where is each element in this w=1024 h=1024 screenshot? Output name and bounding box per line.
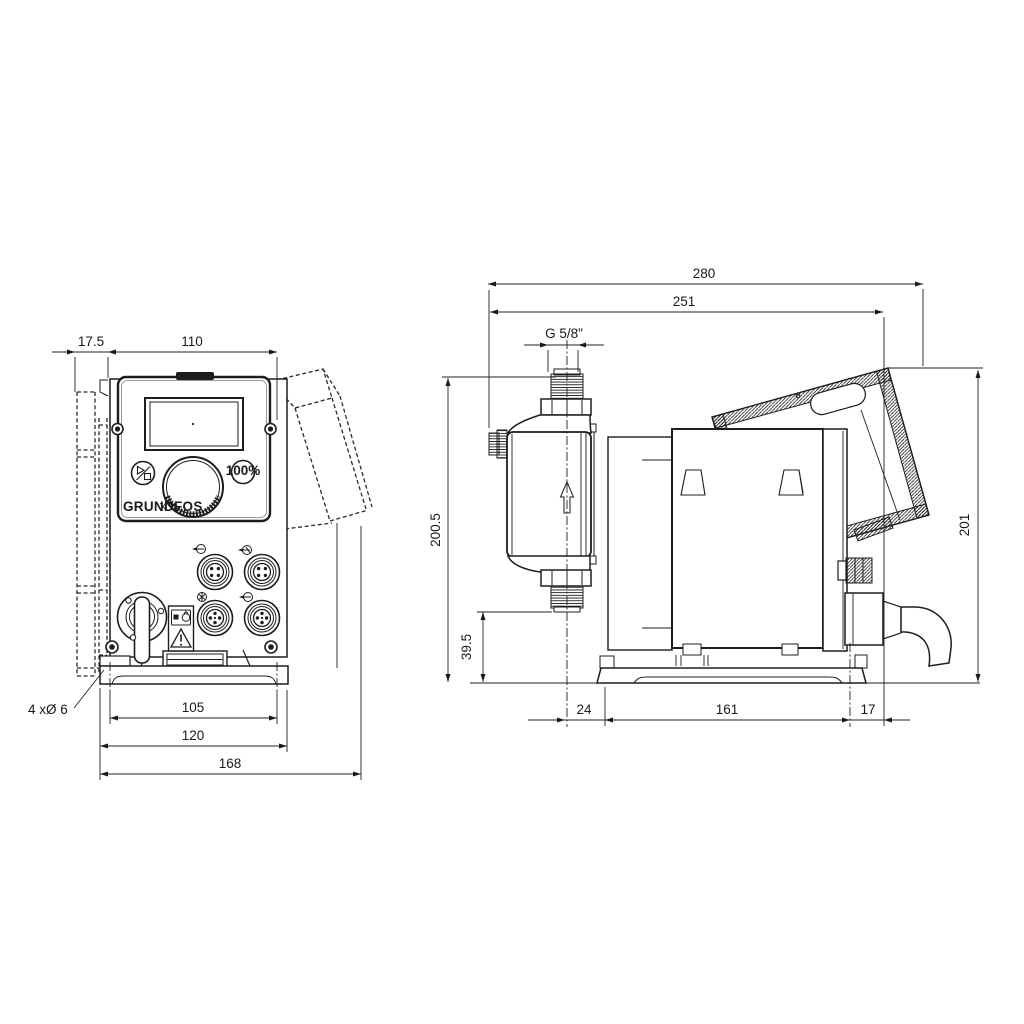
dim-base-length: 161 [716, 702, 739, 717]
panel-top-tab [176, 372, 214, 380]
vent-valve[interactable] [489, 430, 507, 458]
rear-connections [838, 558, 951, 666]
dim-thread: G 5/8" [545, 326, 583, 341]
percent-button-label: 100% [226, 463, 261, 478]
dosing-pump-dimensional-drawing: 100% GRUNDFOS [0, 0, 1024, 1024]
m12-socket-1[interactable] [198, 555, 233, 590]
dim-depth-to-display: 251 [673, 294, 696, 309]
motor-housing-side [608, 429, 847, 651]
dim-height-overall: 200.5 [428, 513, 443, 547]
m12-socket-4[interactable] [245, 601, 280, 636]
panel-screw-left [112, 424, 123, 435]
mains-cable [901, 607, 951, 666]
power-cable-front [135, 597, 150, 663]
dim-foot-width: 120 [182, 728, 205, 743]
dim-base-front: 24 [576, 702, 592, 717]
dosing-head [489, 369, 596, 612]
m12-socket-3[interactable] [198, 601, 233, 636]
housing-screw-right [265, 641, 277, 653]
dim-holes-note: 4 xØ 6 [28, 702, 68, 717]
dim-offset: 17.5 [78, 334, 104, 349]
side-view [470, 368, 980, 683]
dim-overall-width: 168 [219, 756, 242, 771]
control-panel: 100% GRUNDFOS [112, 372, 276, 521]
warning-label [169, 606, 194, 651]
mains-connector [845, 593, 883, 645]
housing-screw-left [106, 641, 118, 653]
strain-relief [883, 601, 901, 639]
dim-base-rear: 17 [860, 702, 875, 717]
front-view: 100% GRUNDFOS [77, 369, 372, 690]
suction-nut [541, 570, 591, 586]
dim-overall-depth: 280 [693, 266, 716, 281]
hidden-tube-outline [77, 392, 107, 676]
lcd-display [145, 398, 243, 450]
panel-screw-right [265, 424, 276, 435]
dim-height-rear: 201 [957, 514, 972, 537]
discharge-nut [541, 399, 591, 415]
m12-socket-2[interactable] [245, 555, 280, 590]
dim-hole-spacing: 105 [182, 700, 205, 715]
dosing-head-body [507, 432, 591, 557]
cable-gland [846, 558, 872, 583]
housing-lug [100, 380, 108, 396]
drawing-svg: 100% GRUNDFOS [0, 0, 1024, 1024]
dim-height-suction: 39.5 [459, 634, 474, 660]
start-stop-button[interactable] [132, 462, 155, 485]
dim-width: 110 [181, 334, 203, 349]
